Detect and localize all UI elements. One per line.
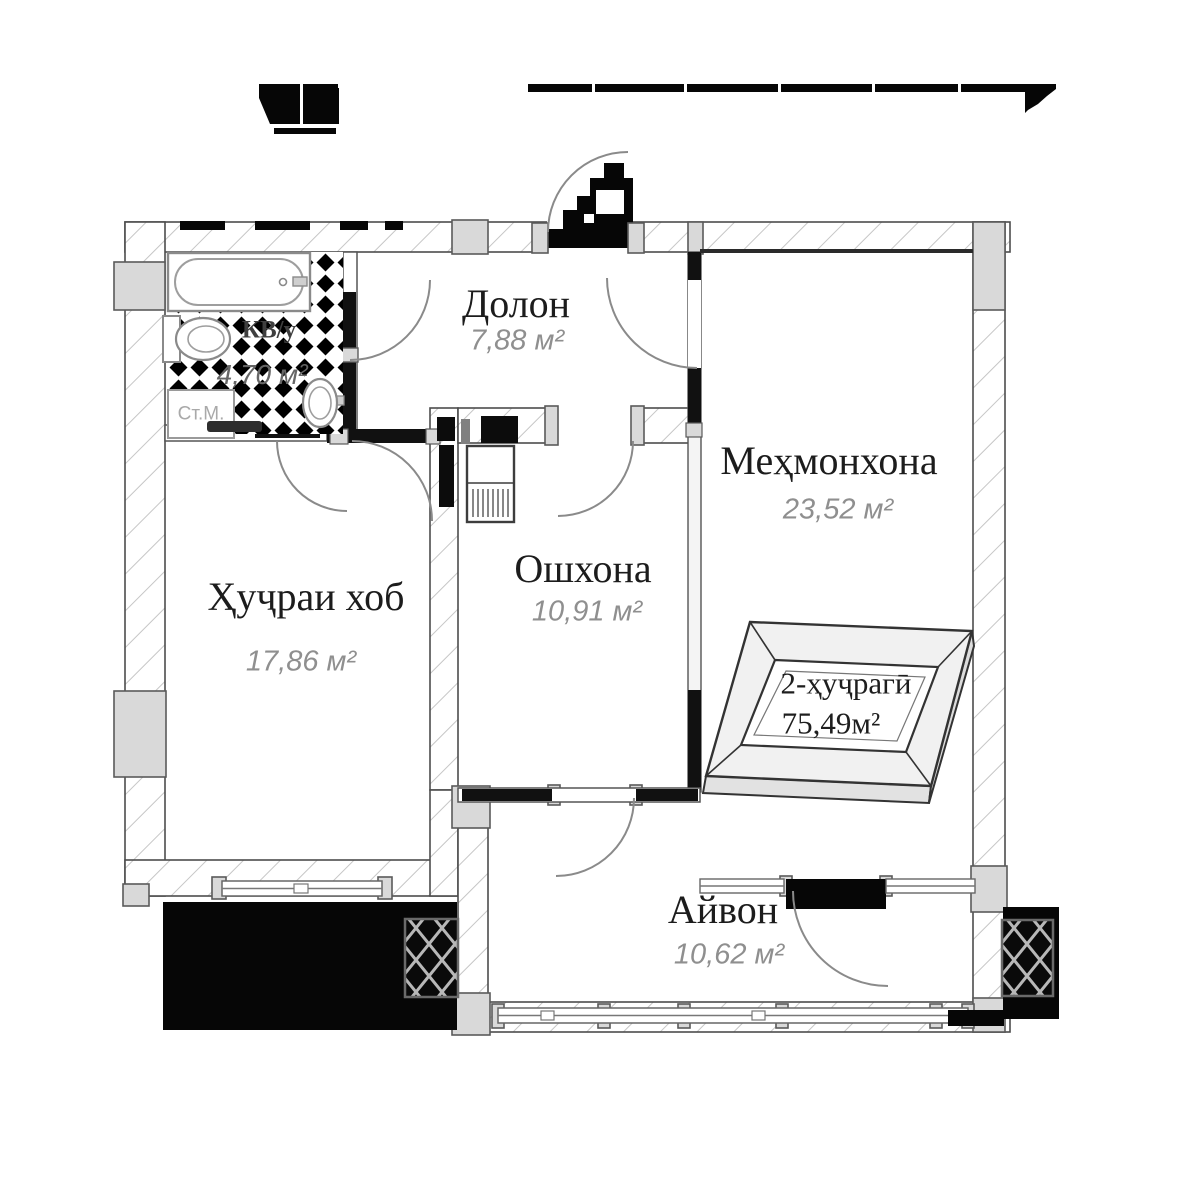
room-area-ayvon: 10,62 м²	[674, 941, 784, 970]
duct	[461, 419, 470, 444]
room-area-hujrai-khob: 17,86 м²	[246, 648, 356, 677]
room-area-oshkhona: 10,91 м²	[532, 598, 642, 627]
floor-plan-page: КВ/у 4,70 м² Ст.М. Долон 7,88 м² Меҳмонх…	[0, 0, 1181, 1181]
bathroom-door-arc	[350, 280, 430, 360]
lattice-panel-left	[405, 919, 458, 997]
bedroom-door-arc-left	[277, 441, 347, 511]
room-label-mehmonkhona: Меҳмонхона	[720, 441, 937, 481]
toilet-icon	[163, 316, 230, 362]
washing-machine-label: Ст.М.	[178, 405, 225, 424]
bedroom-door-arc-right	[352, 441, 432, 521]
room-label-sanuzel: КВ/у	[242, 318, 296, 343]
vent-shaft	[481, 416, 518, 443]
room-area-mehmonkhona: 23,52 м²	[783, 496, 893, 525]
lattice-panel-right	[1002, 920, 1053, 996]
room-label-oshkhona: Ошхона	[514, 549, 651, 589]
room-label-dolon: Долон	[462, 284, 570, 324]
room-label-ayvon: Айвон	[668, 890, 778, 930]
kitchen-appliance-icon	[467, 446, 514, 522]
unit-type-label: 2-ҳуҷрагӣ	[781, 668, 912, 699]
unit-total-area: 75,49м²	[782, 708, 881, 739]
vent-shaft	[439, 445, 454, 507]
room-label-hujrai-khob: Ҳуҷраи хоб	[208, 577, 405, 617]
room-area-dolon: 7,88 м²	[470, 327, 564, 356]
vent-shaft	[437, 417, 455, 441]
living-room-door-arc	[607, 278, 697, 368]
room-area-sanuzel: 4,70 м²	[217, 361, 308, 389]
kitchen-door-arc	[558, 441, 633, 516]
entrance-stairs-silhouette	[548, 163, 633, 248]
top-logo-silhouette	[259, 84, 1056, 134]
bathtub-icon	[168, 253, 310, 311]
kitchen-veranda-door-arc	[556, 798, 634, 876]
